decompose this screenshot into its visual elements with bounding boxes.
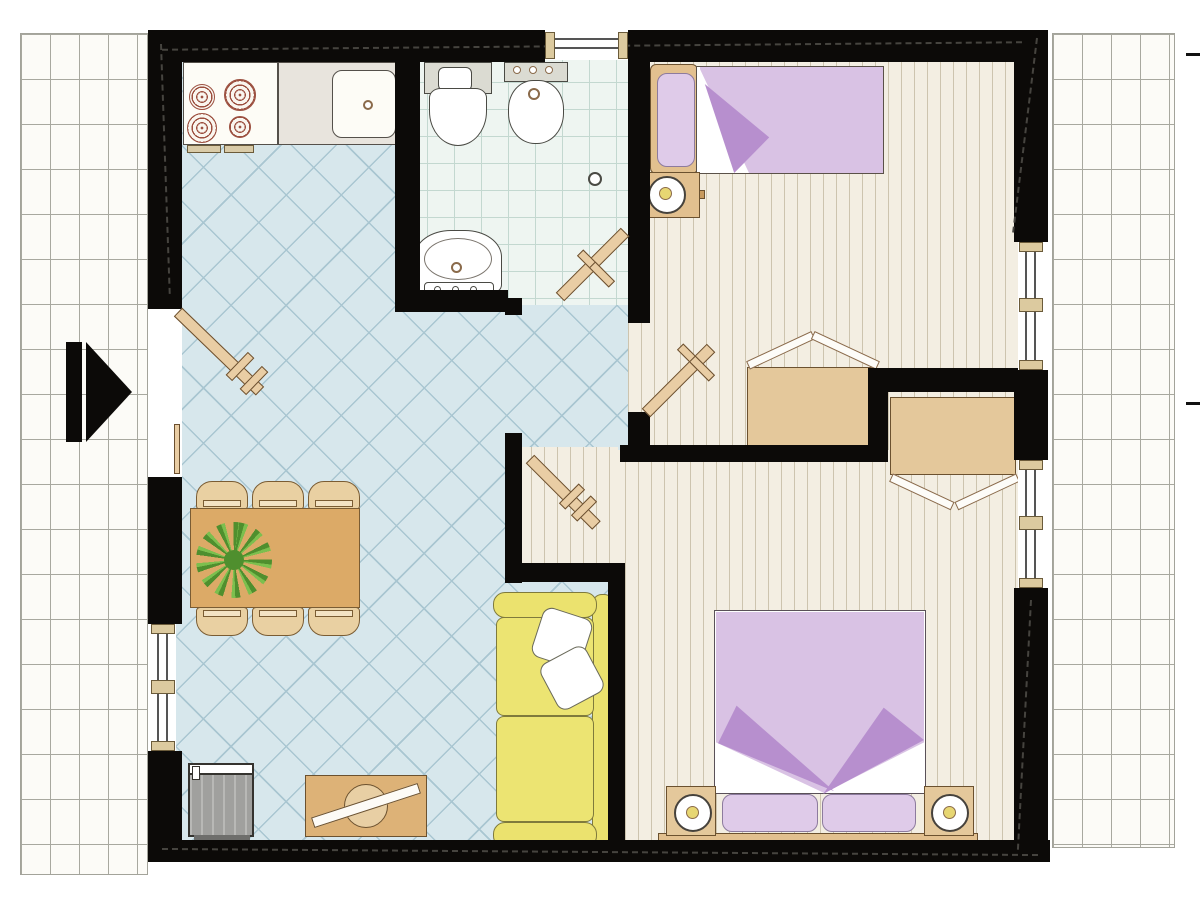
- dimension-tick-mid: [1186, 402, 1200, 405]
- right-wall-window-upper: [1018, 242, 1044, 370]
- stove-burner: [229, 116, 251, 138]
- wall-entry-bottom: [505, 563, 620, 582]
- dining-chair: [252, 481, 304, 510]
- wall-hall-left: [505, 433, 522, 583]
- floor-drain: [588, 172, 602, 186]
- bed1-stool-center: [659, 187, 672, 200]
- stove-burner: [187, 113, 217, 143]
- dining-chair: [252, 607, 304, 636]
- wood-stove-knob: [192, 766, 200, 780]
- bed2-pillow-right: [822, 794, 916, 832]
- entrance-jamb: [174, 424, 180, 474]
- wall-left-middle: [148, 477, 182, 624]
- stove-foot: [187, 145, 221, 153]
- stove-burner: [224, 79, 256, 111]
- dining-chair: [196, 607, 248, 636]
- dining-chair: [308, 607, 360, 636]
- wall-bedroom-divider-right: [868, 368, 1020, 392]
- wall-living-bedroom2: [608, 563, 625, 842]
- left-wall-window: [150, 624, 176, 751]
- bidet-tap-dot: [513, 66, 521, 74]
- entrance-arrow-bar: [66, 342, 82, 442]
- stove-foot: [224, 145, 254, 153]
- floor-plan: [0, 0, 1200, 900]
- wall-bedroom-divider-joint: [868, 385, 888, 462]
- dining-chair: [308, 481, 360, 510]
- bed1-pillow: [657, 73, 695, 167]
- washbasin-tap: [451, 262, 462, 273]
- dining-chair: [196, 481, 248, 510]
- window-mid-cap: [1019, 516, 1043, 530]
- plant: [196, 522, 272, 598]
- washbasin-bowl: [424, 238, 492, 280]
- bidet-tap: [528, 88, 540, 100]
- bed1-desk-knob: [699, 190, 705, 199]
- wall-bathroom-bottom: [395, 290, 508, 312]
- bidet-tap-dot: [529, 66, 537, 74]
- bidet-tap-dot: [545, 66, 553, 74]
- stove-burner: [189, 84, 215, 110]
- bed2-lamp-left-core: [686, 806, 699, 819]
- right-terrace: [1052, 33, 1175, 848]
- bed2-wardrobe: [890, 397, 1016, 475]
- bed2-pillow-left: [722, 794, 818, 832]
- wall-right-upper: [1014, 30, 1048, 242]
- wall-bedroom-divider-left: [620, 445, 885, 462]
- window-mid-cap: [151, 680, 175, 694]
- bathroom-window: [545, 31, 628, 60]
- wall-bathroom-left: [395, 62, 420, 312]
- bed1-wardrobe: [747, 367, 877, 447]
- right-wall-window-lower: [1018, 460, 1044, 588]
- wall-hall-right-upper: [628, 62, 650, 323]
- sink-tap: [363, 100, 373, 110]
- left-terrace: [20, 33, 148, 875]
- sofa-cushion: [496, 716, 594, 822]
- wall-hall-post: [505, 298, 522, 315]
- window-mid-cap: [1019, 298, 1043, 312]
- dimension-tick-top: [1186, 53, 1200, 56]
- bed2-lamp-right-core: [943, 806, 956, 819]
